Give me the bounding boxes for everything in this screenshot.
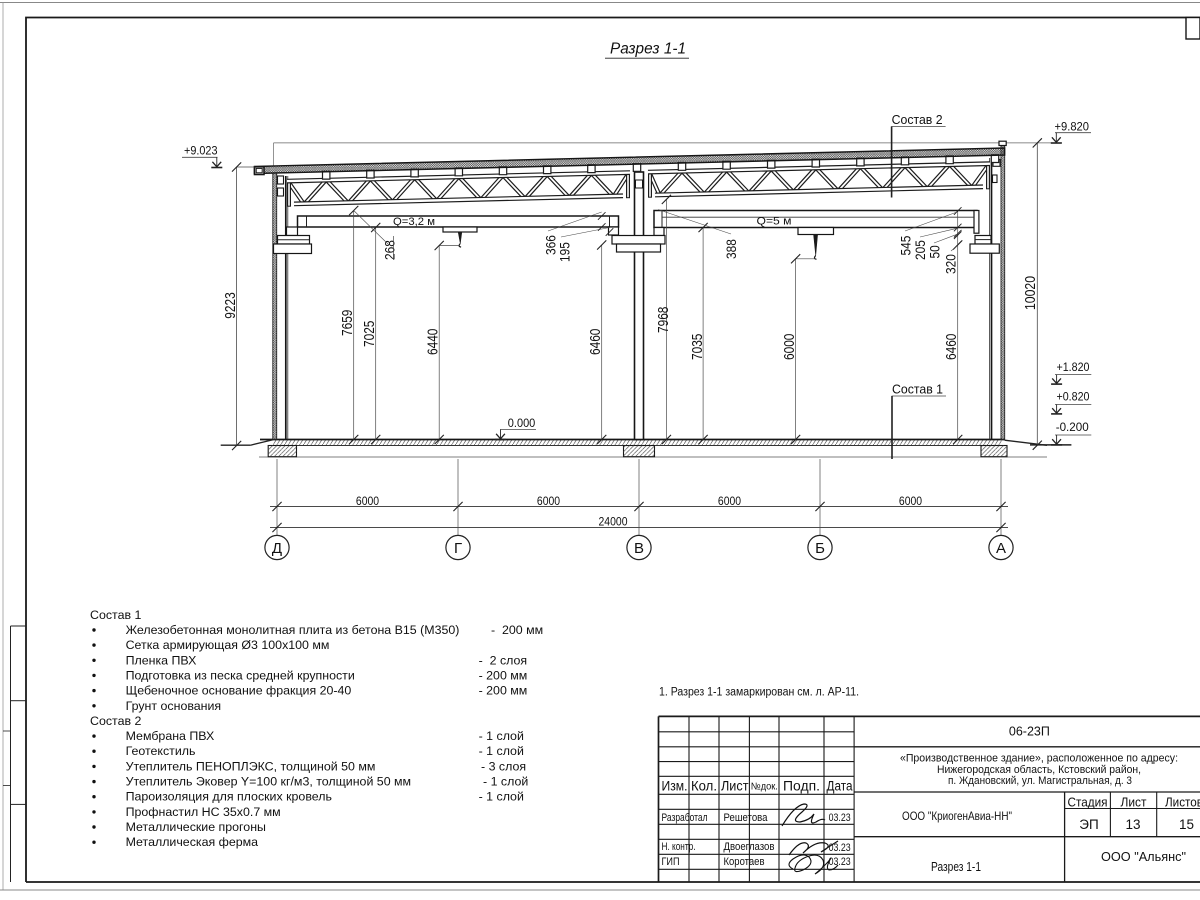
svg-text:Состав 2: Состав 2 [892,113,943,127]
svg-text:6000: 6000 [899,496,922,508]
svg-text:Нижегородская область, Кстовск: Нижегородская область, Кстовский район, [937,764,1141,776]
svg-text:Состав 1: Состав 1 [892,383,943,397]
svg-text:Сетка армирующая Ø3 100х100 мм: Сетка армирующая Ø3 100х100 мм [126,638,330,652]
svg-text:03.23: 03.23 [829,842,851,854]
svg-text:Железобетонная монолитная плит: Железобетонная монолитная плита из бетон… [126,623,460,637]
svg-text:388: 388 [723,239,739,259]
svg-text:- 2 слоя: - 2 слоя [479,653,528,667]
svg-text:6460: 6460 [588,329,604,355]
svg-text:ООО "КриогенАвиа-НН": ООО "КриогенАвиа-НН" [902,809,1012,823]
svg-text:7025: 7025 [362,321,378,347]
svg-text:Решетова: Решетова [724,812,769,824]
svg-text:Б: Б [815,540,825,557]
svg-text:9223: 9223 [223,292,239,318]
svg-text:268: 268 [381,240,397,260]
svg-text:Стадия: Стадия [1068,795,1108,810]
svg-text:Состав 2: Состав 2 [90,714,141,728]
svg-text:7035: 7035 [690,334,706,360]
svg-text:6460: 6460 [944,334,960,360]
svg-text:Щебеночное основание фракция 2: Щебеночное основание фракция 20-40 [126,684,352,698]
svg-text:п. Ждановский, ул. Магистральн: п. Ждановский, ул. Магистральная, д. 3 [948,775,1132,787]
svg-text:+0.820: +0.820 [1057,390,1090,404]
svg-text:195: 195 [557,242,573,262]
svg-text:03.23: 03.23 [829,812,851,824]
svg-text:Металлическая ферма: Металлическая ферма [126,835,259,849]
svg-text:Утеплитель ПЕНОПЛЭКС, толщиной: Утеплитель ПЕНОПЛЭКС, толщиной 50 мм [126,759,376,773]
svg-text:320: 320 [943,254,959,274]
svg-text:Мембрана ПВХ: Мембрана ПВХ [126,729,215,743]
svg-text:Грунт основания: Грунт основания [126,699,222,713]
svg-text:7968: 7968 [656,307,672,333]
svg-text:Н. контр.: Н. контр. [662,841,696,853]
svg-text:Дата: Дата [827,779,853,794]
svg-text:24000: 24000 [599,516,628,528]
svg-text:15: 15 [1179,817,1194,832]
svg-text:№док.: №док. [751,782,778,793]
svg-text:«Производственное здание», рас: «Производственное здание», расположенное… [900,753,1178,765]
svg-text:1. Разрез 1-1 замаркирован см.: 1. Разрез 1-1 замаркирован см. л. АР-11. [659,686,859,698]
svg-text:Разрез 1-1: Разрез 1-1 [931,860,981,874]
svg-text:Профнастил НС 35х0.7 мм: Профнастил НС 35х0.7 мм [126,805,281,819]
svg-text:Лист: Лист [1121,795,1147,810]
svg-text:А: А [996,540,1006,557]
svg-text:- 1 слой: - 1 слой [479,729,524,743]
svg-text:В: В [634,540,644,557]
svg-text:03.23: 03.23 [829,856,851,868]
svg-text:Коротаев: Коротаев [724,856,765,868]
svg-text:10020: 10020 [1023,276,1039,310]
svg-text:Лист: Лист [721,779,749,794]
svg-text:Металлические прогоны: Металлические прогоны [126,820,266,834]
svg-text:+9.820: +9.820 [1055,119,1090,133]
svg-text:Пленка ПВХ: Пленка ПВХ [126,653,197,667]
svg-text:7659: 7659 [340,310,356,336]
svg-text:Утеплитель Эковер Y=100 кг/м3,: Утеплитель Эковер Y=100 кг/м3, толщиной … [126,775,411,789]
svg-text:Двоеглазов: Двоеглазов [724,841,775,853]
svg-text:Состав 1: Состав 1 [90,608,141,622]
svg-text:6000: 6000 [718,496,741,508]
svg-text:- 1 слой: - 1 слой [479,744,524,758]
svg-text:Изм.: Изм. [662,779,688,794]
svg-text:- 3 слоя: - 3 слоя [481,759,526,773]
svg-text:6440: 6440 [426,329,442,355]
svg-text:Q=3,2 м: Q=3,2 м [393,216,435,228]
svg-text:06-23П: 06-23П [1009,724,1050,738]
svg-text:Разработал: Разработал [662,812,708,824]
svg-text:0.000: 0.000 [508,416,536,430]
svg-text:Подготовка из песка средней кр: Подготовка из песка средней крупности [126,668,355,682]
svg-text:6000: 6000 [537,496,560,508]
svg-text:Кол.: Кол. [691,779,717,794]
svg-text:Разрез 1-1: Разрез 1-1 [610,41,686,58]
svg-text:50: 50 [927,245,943,258]
svg-text:13: 13 [1125,817,1140,832]
svg-text:Г: Г [454,540,462,557]
svg-text:-0.200: -0.200 [1056,420,1089,434]
svg-text:- 200 мм: - 200 мм [479,684,528,698]
svg-text:Листов: Листов [1165,795,1200,810]
svg-text:- 200 мм: - 200 мм [491,623,543,637]
svg-text:- 1 слой: - 1 слой [483,775,528,789]
svg-text:6000: 6000 [356,496,379,508]
svg-text:Д: Д [272,540,282,557]
svg-text:ЭП: ЭП [1079,817,1098,832]
svg-text:ООО "Альянс": ООО "Альянс" [1101,849,1186,864]
svg-text:+9.023: +9.023 [184,144,218,158]
svg-text:Геотекстиль: Геотекстиль [126,744,196,758]
svg-text:Подп.: Подп. [783,779,820,794]
svg-text:Q=5 м: Q=5 м [757,216,792,228]
svg-text:Пароизоляция для плоских крове: Пароизоляция для плоских кровель [126,790,332,804]
svg-text:- 200 мм: - 200 мм [479,668,528,682]
svg-text:6000: 6000 [782,334,798,360]
svg-text:- 1 слой: - 1 слой [479,790,524,804]
svg-text:ГИП: ГИП [662,856,680,868]
svg-text:+1.820: +1.820 [1057,360,1090,374]
